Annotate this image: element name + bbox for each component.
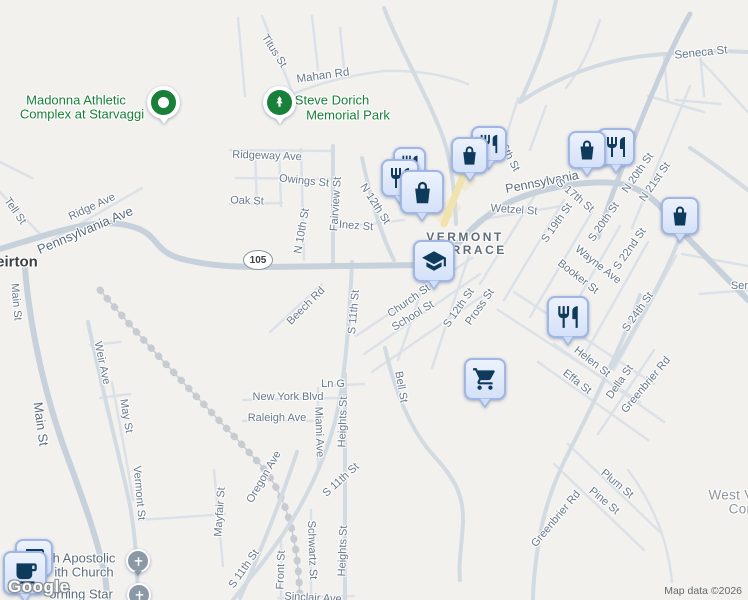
map-data-attribution: Map data ©2026 [664,585,742,597]
park-pin[interactable] [263,86,296,119]
shopping-bag-pin[interactable] [400,170,444,214]
place-pin[interactable] [147,86,180,119]
shopping-bag-icon [458,144,481,167]
cross-icon [131,554,146,569]
grocery-cart-icon [472,366,498,392]
church-pin[interactable] [127,583,151,600]
shopping-bag-pin[interactable] [451,137,488,174]
route-105-shield: 105 [243,250,273,270]
roads-layer [0,0,748,600]
shopping-bag-pin[interactable] [661,197,699,235]
restaurant-icon [555,304,581,330]
google-logo[interactable]: Google [8,577,70,597]
tree-icon [271,94,288,111]
map-canvas[interactable]: Seneca StTitus StMahan RdRidgeway AveOwi… [0,0,748,600]
school-pin[interactable] [413,240,455,282]
church-pin[interactable] [126,549,150,573]
shopping-bag-icon [668,204,692,228]
grocery-cart-pin[interactable] [464,358,506,400]
place-dot-icon [151,90,176,115]
shopping-bag-icon [409,179,436,206]
restaurant-icon [604,135,628,159]
shopping-bag-icon [575,138,599,162]
cross-icon [132,588,147,600]
school-icon [421,248,447,274]
shopping-bag-pin[interactable] [568,131,606,169]
restaurant-pin[interactable] [547,296,589,338]
